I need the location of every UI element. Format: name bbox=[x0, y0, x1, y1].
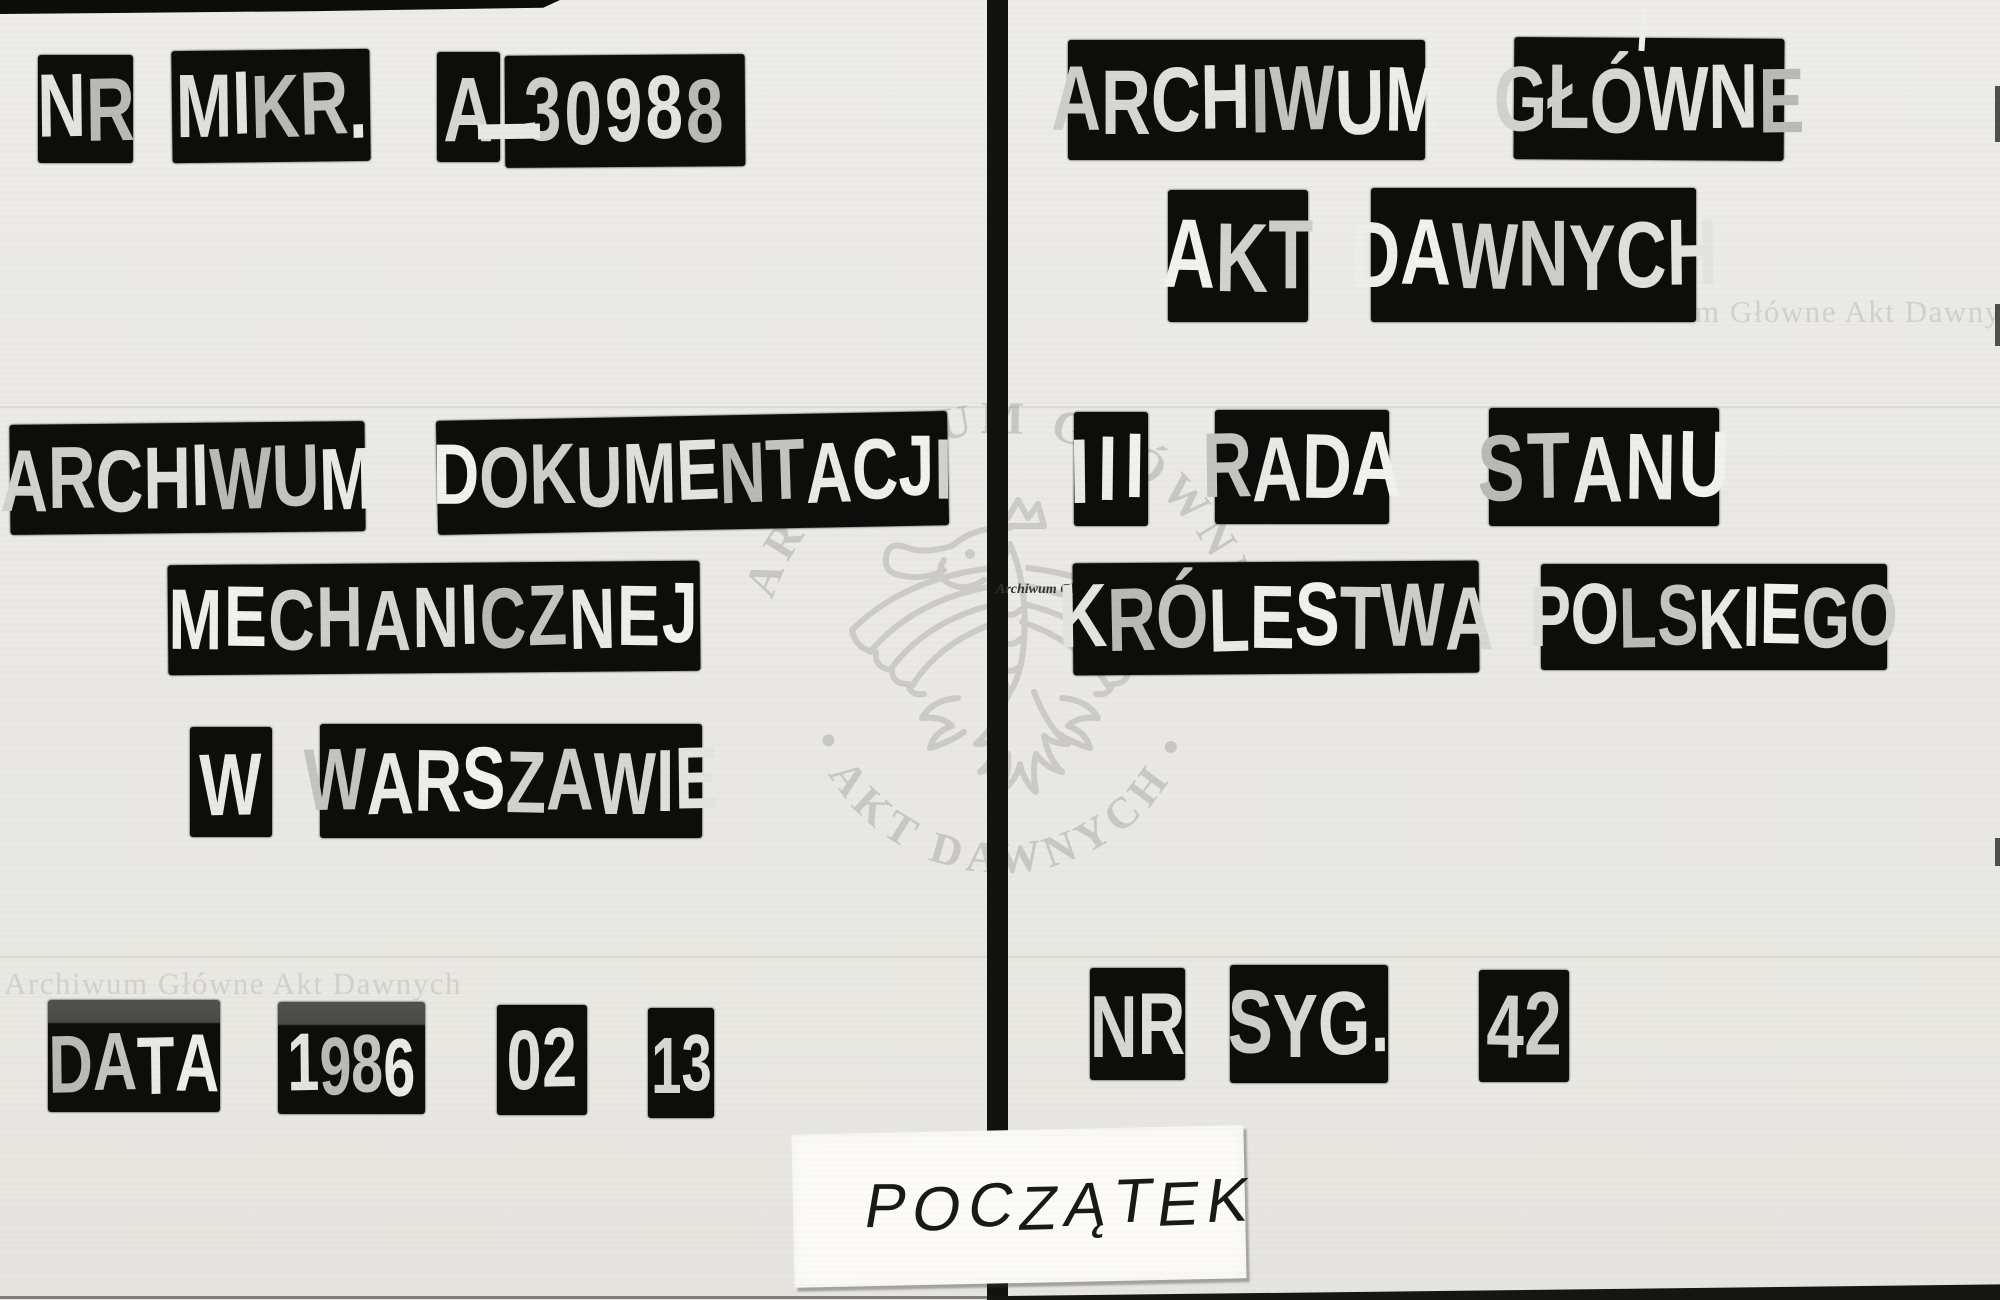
signature-number-tile: 42 bbox=[1479, 970, 1569, 1082]
microfilm-label-nr-tile: NR bbox=[38, 55, 133, 163]
poczatek-slip: POCZĄTEK bbox=[791, 1125, 1246, 1287]
microfilm-separator-mark: - bbox=[478, 123, 540, 139]
film-divider bbox=[987, 0, 1008, 1300]
bottom-film-edge-left bbox=[0, 1296, 992, 1299]
date-label-tile: DATA bbox=[48, 1000, 220, 1112]
institution-w-tile: W bbox=[190, 727, 272, 837]
film-edge-tick bbox=[1995, 304, 2000, 346]
fond-rada-tile: RADA bbox=[1215, 410, 1389, 524]
watermark-bottom-left: Archiwum Główne Akt Dawnych bbox=[4, 966, 462, 1002]
archive-dawnych-tile: DAWNYCH bbox=[1371, 188, 1696, 322]
institution-mechanicznej-tile: MECHANICZNEJ bbox=[168, 561, 701, 676]
date-day-tile: 13 bbox=[648, 1008, 714, 1118]
fond-stanu-tile: STANU bbox=[1489, 408, 1719, 526]
microfilm-number-tile: 30988 bbox=[505, 54, 746, 168]
signature-syg-tile: SYG. bbox=[1230, 965, 1388, 1083]
bottom-film-edge bbox=[988, 1283, 2000, 1300]
fond-iii-tile: III bbox=[1074, 412, 1148, 526]
date-month-tile: 02 bbox=[497, 1005, 587, 1115]
signature-nr-tile: NR bbox=[1090, 968, 1185, 1080]
top-film-edge bbox=[0, 0, 560, 14]
fond-polskiego-tile: POLSKIEGO bbox=[1541, 564, 1887, 670]
microfilm-label-mikr-tile: MIKR. bbox=[171, 49, 370, 163]
film-edge-tick bbox=[1995, 86, 2000, 142]
institution-dokumentacji-tile: DOKUMENTACJI bbox=[436, 411, 949, 535]
institution-warszawie-tile: WARSZAWIE bbox=[320, 724, 702, 838]
archive-archiwum-tile: ARCHIWUM bbox=[1068, 40, 1425, 160]
film-edge-tick bbox=[1995, 838, 2000, 866]
slip-text: POCZĄTEK bbox=[860, 1166, 1261, 1245]
microfilm-prefix-tile: A bbox=[437, 52, 500, 162]
date-year-tile: 1986 bbox=[278, 1002, 425, 1114]
fond-krolestwa-tile: KRÓLESTWA bbox=[1073, 561, 1480, 676]
microfilm-scan-surface: ARCHIWUM GŁÓWNE • AKT DAWNYCH • bbox=[0, 0, 2000, 1300]
archive-glowne-tile: GŁÓWNE bbox=[1514, 37, 1785, 161]
institution-archiwum-tile: ARCHIWUM bbox=[9, 421, 365, 535]
archive-akt-tile: AKT bbox=[1168, 190, 1308, 322]
